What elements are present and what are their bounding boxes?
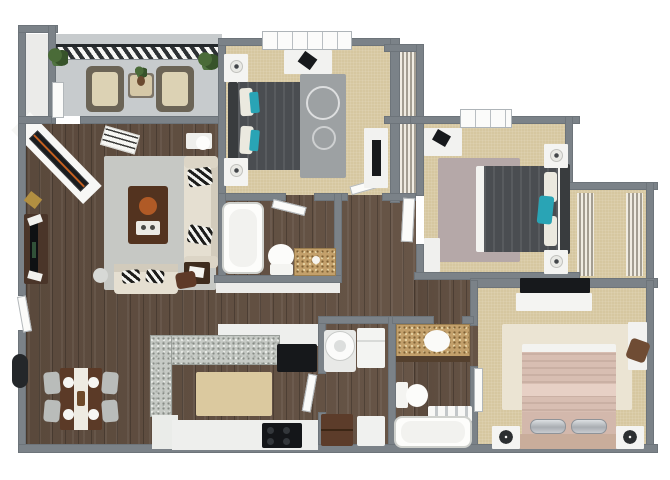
washer-core xyxy=(334,340,346,352)
bedroom2-lamp-bottom xyxy=(550,255,563,268)
bedroom1-lamp-top xyxy=(230,60,243,73)
coffee-table-tray xyxy=(136,221,160,235)
round-stool xyxy=(93,268,108,283)
dining-centerpiece xyxy=(77,391,85,406)
wall-balcony-bottom-a xyxy=(18,116,52,124)
loveseat-pillow-left xyxy=(121,269,140,284)
dining-plate-1 xyxy=(63,377,74,388)
kitchen-mat xyxy=(196,372,272,416)
laundry-shelf-box xyxy=(357,416,385,446)
balcony-chair-left-cushion xyxy=(92,72,118,106)
wall-bath1-bottom xyxy=(214,275,342,283)
sofa-arm-top xyxy=(184,156,218,168)
kitchen-counter-granite-vertical xyxy=(150,335,172,417)
tray-dot-1 xyxy=(141,225,146,230)
closet1-sliding-doors-lower xyxy=(400,124,416,195)
bath1-bottom-face xyxy=(216,283,340,293)
dryer xyxy=(357,328,385,368)
bath2-tub-inner xyxy=(401,421,465,443)
bath2-sink xyxy=(424,330,450,352)
wall-mounted-unit xyxy=(12,354,28,388)
dining-plate-3 xyxy=(63,409,74,420)
dining-plate-4 xyxy=(88,409,99,420)
burner-3 xyxy=(267,438,274,445)
bedroom1-headboard xyxy=(228,82,238,170)
wall-bath2-top-b xyxy=(462,316,474,324)
bedroom1-dresser-tv xyxy=(372,140,381,176)
bath1-tub-inner xyxy=(229,209,257,267)
coffee-table-plate xyxy=(139,197,157,215)
bedroom1-rug-swirl-1 xyxy=(306,86,340,120)
bath2-vanity-front xyxy=(396,356,470,362)
dryer-line xyxy=(357,340,385,342)
laundry-cabinet-line xyxy=(321,429,353,431)
bedroom3-door xyxy=(474,368,483,412)
coffee-table xyxy=(128,186,168,244)
bedroom1-lamp-bottom xyxy=(230,164,243,177)
bedroom3-pillow-a xyxy=(530,419,566,434)
bedroom3-lamp-left xyxy=(499,430,513,444)
bedroom1-teal-pillow-a xyxy=(249,92,260,114)
bath2-toilet-bowl xyxy=(406,384,428,407)
dining-chair-4 xyxy=(101,399,119,422)
burner-2 xyxy=(283,427,290,434)
loveseat-pillow-right xyxy=(145,269,165,284)
sofa-pillow-bottom xyxy=(187,224,214,246)
bedroom1-teal-pillow-b xyxy=(249,130,260,152)
balcony-storage-floor xyxy=(26,34,48,116)
bedroom3-duvet-fold xyxy=(522,384,616,396)
wall-left-lower xyxy=(18,330,26,452)
dining-chair-1 xyxy=(43,371,61,394)
closet1-sliding-doors-upper xyxy=(400,52,416,116)
burner-4 xyxy=(283,438,290,445)
walkin-closet-door-left xyxy=(577,193,594,276)
dining-plate-2 xyxy=(88,377,99,388)
bedroom3-tv xyxy=(520,278,590,293)
bedroom2-window xyxy=(460,109,512,128)
balcony-plant-right xyxy=(198,52,218,70)
sofa-pillow-top xyxy=(187,166,213,187)
bedroom1-window xyxy=(262,31,352,50)
wall-bedroom3-right xyxy=(646,280,654,452)
corner-table-decor xyxy=(196,136,210,150)
wall-walkin-top xyxy=(565,182,658,190)
walkin-closet-door-right xyxy=(626,193,643,276)
floorplan xyxy=(0,0,670,480)
dining-chair-2 xyxy=(43,399,61,422)
balcony-table-vase xyxy=(137,76,145,86)
bath1-candle xyxy=(312,256,320,264)
bedroom2-door xyxy=(401,198,415,243)
bar-stool xyxy=(175,270,197,289)
burner-1 xyxy=(267,427,274,434)
refrigerator xyxy=(277,344,317,372)
bedroom2-headboard xyxy=(560,164,570,254)
wall-laundry-top xyxy=(318,316,392,324)
balcony-chair-right-cushion xyxy=(162,72,188,106)
bedroom3-dresser xyxy=(516,293,592,311)
sofa-back-edge xyxy=(211,158,218,266)
bedroom1-rug-swirl-2 xyxy=(312,126,336,150)
wall-walkin-right xyxy=(646,182,654,288)
bedroom3-headboard xyxy=(519,434,619,449)
dining-chair-3 xyxy=(101,371,119,394)
bath1-toilet-tank xyxy=(270,264,293,275)
balcony-plant-left xyxy=(48,48,68,66)
wall-balcony-bottom-b xyxy=(80,116,226,124)
balcony-door xyxy=(52,82,64,118)
tray-dot-2 xyxy=(150,225,155,230)
bedroom2-teal-pillow xyxy=(537,195,555,224)
bedroom3-lamp-right xyxy=(623,430,637,444)
tv-glow xyxy=(32,242,36,258)
bedroom2-lamp-top xyxy=(550,149,563,162)
bedroom2-bench xyxy=(424,238,440,272)
wall-bath2-top-a xyxy=(392,316,434,324)
wall-hall-top-b xyxy=(314,193,348,201)
bedroom3-pillow-b xyxy=(571,419,607,434)
